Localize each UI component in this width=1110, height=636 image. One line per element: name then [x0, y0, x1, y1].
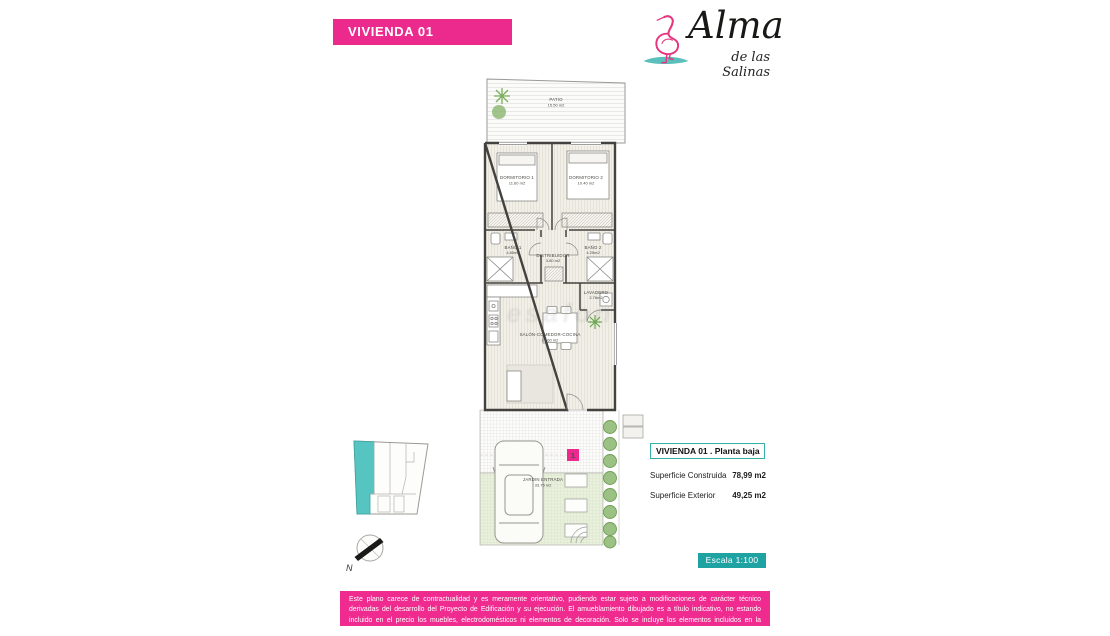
surface-label: Superficie Exterior	[650, 491, 715, 500]
surface-value: 78,99 m2	[732, 471, 766, 480]
site-key-plan	[344, 432, 444, 517]
room-label-jardin: JARDIN ENTRADA	[523, 477, 563, 482]
surface-table: Superficie Construida 78,99 m2 Superfici…	[650, 471, 766, 511]
flamingo-icon	[638, 6, 694, 76]
room-area-bano1: 4.85m2	[506, 250, 520, 255]
brand-tagline: de las Salinas	[690, 50, 770, 80]
room-label-dormitorio2: DORMITORIO 2	[569, 175, 603, 180]
patio-area	[487, 79, 625, 143]
compass-north-label: N	[346, 563, 353, 573]
svg-text:1: 1	[571, 451, 575, 460]
surface-value: 49,25 m2	[732, 491, 766, 500]
room-label-patio: PATIO	[549, 97, 563, 102]
room-area-bano2: 4.25m2	[586, 250, 600, 255]
room-area-jardin: 33.75 m2	[535, 483, 552, 488]
room-area-patio: 15.50 m2	[548, 103, 565, 108]
unit-banner: VIVIENDA 01	[333, 19, 512, 45]
watermark: esafon	[468, 298, 653, 334]
room-area-distribuidor: 3.80 m2	[546, 258, 561, 263]
compass: N	[338, 526, 394, 582]
room-area-dormitorio2: 10.40 m2	[578, 181, 595, 186]
hedge-bushes	[604, 421, 617, 549]
surface-row-construida: Superficie Construida 78,99 m2	[650, 471, 766, 480]
brand-name: Alma	[688, 6, 770, 46]
brand-logo: Alma de las Salinas	[638, 4, 770, 74]
surface-row-exterior: Superficie Exterior 49,25 m2	[650, 491, 766, 500]
scale-badge: Escala 1:100	[698, 553, 766, 568]
plan-title: VIVIENDA 01 . Planta baja	[650, 443, 765, 459]
surface-label: Superficie Construida	[650, 471, 726, 480]
disclaimer-bar: Este plano carece de contractualidad y e…	[340, 591, 770, 626]
unit-number-badge: 1	[567, 449, 579, 461]
room-area-dormitorio1: 11.60 m2	[509, 181, 526, 186]
room-label-dormitorio1: DORMITORIO 1	[500, 175, 534, 180]
room-area-salon: 31.60 m2	[542, 338, 559, 343]
car-outline	[493, 441, 545, 543]
palm-tree-icon	[494, 88, 510, 104]
bush-icon	[492, 105, 506, 119]
